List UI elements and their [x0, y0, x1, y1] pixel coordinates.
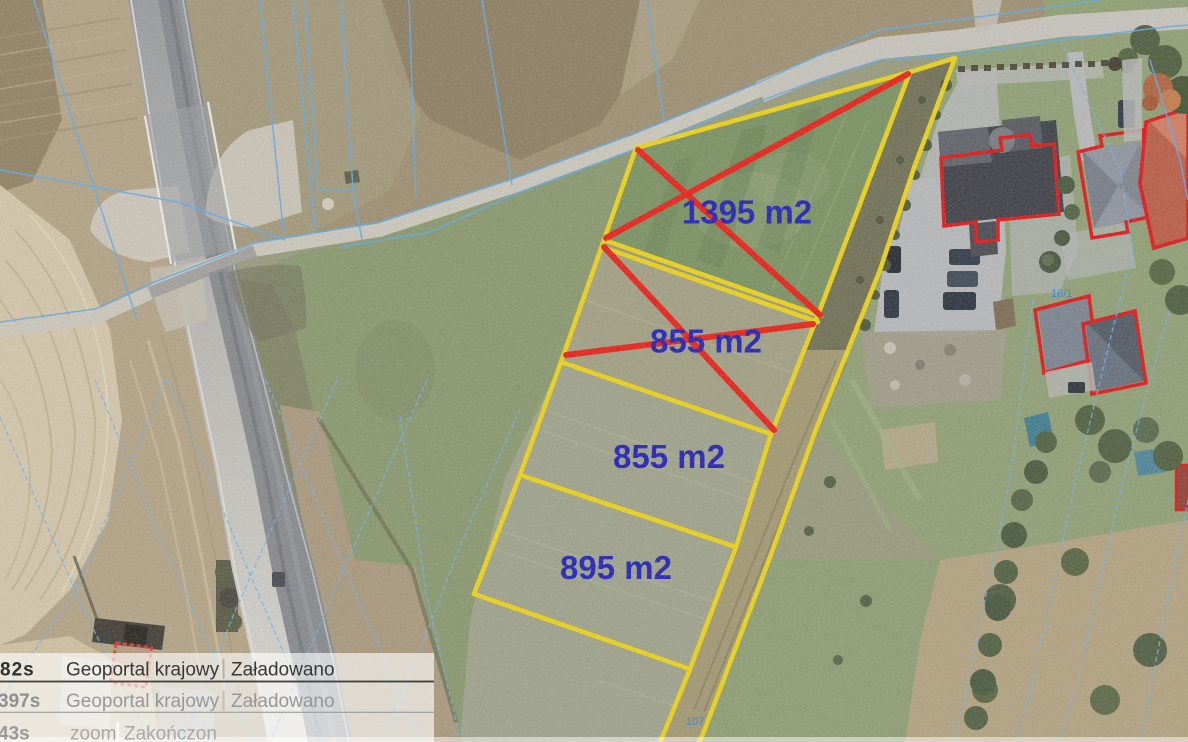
svg-text:Załadowano: Załadowano	[231, 660, 335, 681]
svg-text:82s: 82s	[0, 660, 35, 681]
svg-text:Zakończon: Zakończon	[124, 724, 217, 742]
svg-text:43s: 43s	[0, 724, 30, 742]
svg-text:zoom: zoom	[70, 724, 116, 742]
svg-text:Załadowano: Załadowano	[231, 691, 335, 712]
svg-text:Geoportal krajowy: Geoportal krajowy	[66, 691, 220, 712]
svg-text:397s: 397s	[0, 691, 40, 712]
svg-text:Geoportal krajowy: Geoportal krajowy	[66, 660, 220, 681]
